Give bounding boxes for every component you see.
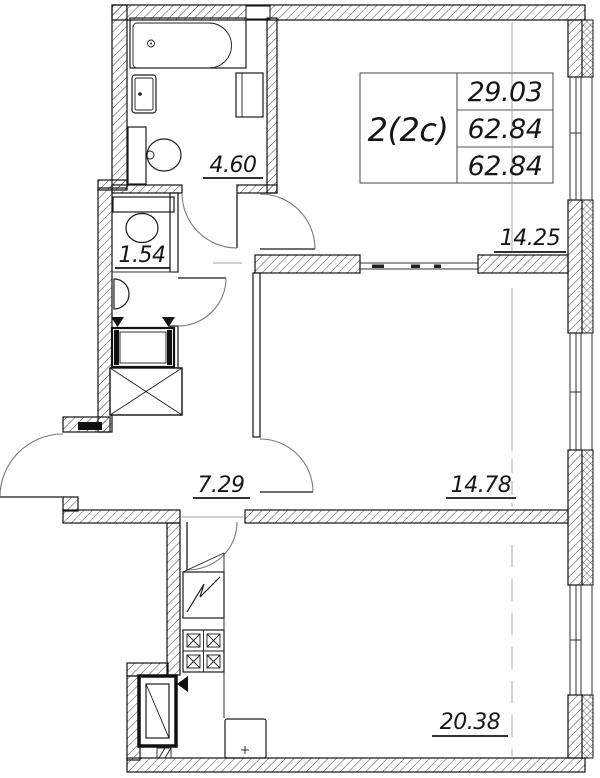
wall-bottom	[127, 758, 585, 772]
label-kitchen-living: 20.38	[440, 710, 501, 735]
pier-4-insulation	[582, 695, 593, 758]
wall-bathroom-bottom-left	[112, 185, 182, 193]
wall-mid-right	[478, 255, 568, 273]
wall-entry-jamb	[63, 497, 78, 511]
pier-2-insulation	[582, 200, 593, 333]
wall-bottom-left	[63, 510, 180, 523]
wall-bathroom-right	[267, 18, 277, 193]
entry-threshold	[78, 422, 102, 430]
area-value-3: 62.84	[468, 151, 543, 182]
wall-left-upper	[112, 5, 127, 188]
pier-1	[568, 20, 582, 77]
pier-4	[568, 695, 582, 758]
wardrobe	[110, 368, 182, 415]
partition-bedroom	[253, 273, 260, 437]
wall-niche-top	[127, 663, 168, 676]
label-hall: 7.29	[198, 473, 245, 498]
label-wc: 1.54	[119, 243, 166, 268]
unit-type-label: 2(2c)	[368, 111, 449, 149]
wall-kitchen-top	[245, 510, 568, 523]
pier-2	[568, 200, 582, 333]
wall-bathroom-bottom-right	[237, 185, 277, 193]
refrigerator	[139, 676, 176, 746]
label-bedroom: 14.78	[451, 473, 512, 498]
washing-machine	[112, 328, 174, 367]
pier-1-insulation	[582, 20, 593, 77]
vent-shaft	[246, 6, 270, 19]
wall-kitchen-left	[167, 523, 180, 675]
wall-mid-left	[255, 255, 360, 273]
label-bathroom: 4.60	[210, 153, 257, 178]
area-value-2: 62.84	[468, 114, 543, 145]
pier-3-insulation	[582, 450, 593, 585]
stove	[183, 630, 224, 672]
floor-plan-drawing: 2(2c) 29.03 62.84 62.84 4.60 1.54 14.25 …	[0, 0, 600, 778]
floor-plan-page: 2(2c) 29.03 62.84 62.84 4.60 1.54 14.25 …	[0, 0, 600, 778]
label-living-room: 14.25	[500, 226, 560, 251]
area-value-1: 29.03	[468, 77, 543, 108]
pier-3	[568, 450, 582, 585]
